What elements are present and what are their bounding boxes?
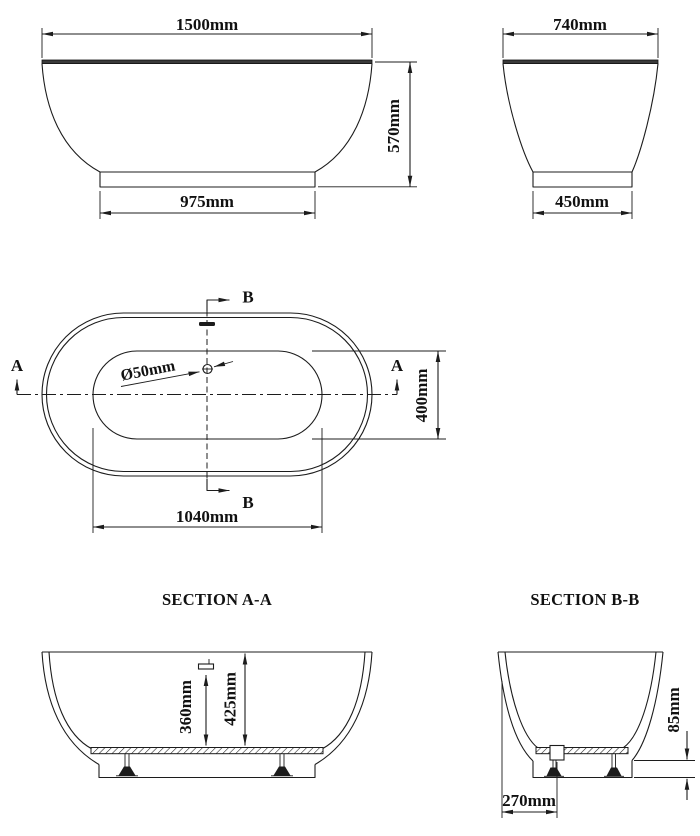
dim-label-basin-width: 400mm [412, 369, 431, 423]
side-view: 740mm 450mm [503, 15, 658, 219]
front-view: 1500mm 975mm 570mm [42, 15, 417, 219]
foot-pad [607, 768, 622, 777]
dim-label-side-base: 450mm [555, 192, 609, 211]
bathtub-technical-drawing: 1500mm 975mm 570mm 740mm 450mm [0, 0, 700, 836]
section-label-b-bottom: B [242, 493, 253, 512]
section-arrow-b-top [207, 300, 230, 311]
dim-label-side-width: 740mm [553, 15, 607, 34]
tub-plinth [533, 172, 632, 187]
tub-wall-right [632, 64, 658, 172]
drain-fitting [550, 746, 564, 761]
section-aa-view: SECTION A-A 360mm 425mm [42, 590, 372, 778]
section-label-a-left: A [11, 356, 24, 375]
wall-inner-right [623, 652, 656, 748]
overflow-fitting [199, 664, 214, 669]
foot-pad [119, 767, 136, 776]
section-arrow-b-bottom [207, 479, 230, 491]
dim-label-drain: Ø50mm [119, 357, 177, 384]
drawing-sheet: 1500mm 975mm 570mm 740mm 450mm [0, 0, 700, 836]
foot-pad [547, 768, 562, 777]
tub-wall-right [315, 64, 372, 172]
section-label-b-top: B [242, 288, 253, 307]
section-aa-title: SECTION A-A [162, 590, 272, 609]
dim-label-basin-length: 1040mm [176, 507, 238, 526]
floor-board-hatched [91, 748, 323, 754]
plan-view: Ø50mm A A B B 400mm 1040mm [11, 288, 446, 534]
dim-label-front-width: 1500mm [176, 15, 238, 34]
drain-leader-line [214, 362, 233, 367]
tub-wall-left [42, 64, 100, 172]
dim-label-front-base: 975mm [180, 192, 234, 211]
tub-plinth [100, 172, 315, 187]
tub-rim [42, 60, 372, 64]
wall-inner-left [505, 652, 538, 748]
wall-inner-left [49, 652, 92, 749]
dim-label-base-height: 85mm [664, 687, 683, 732]
section-label-a-right: A [391, 356, 404, 375]
dim-label-overflow-height: 360mm [176, 680, 195, 734]
wall-inner-right [322, 652, 365, 749]
section-bb-view: SECTION B-B 85mm 270mm [498, 590, 695, 818]
tub-rim [503, 60, 658, 64]
foot-pad [274, 767, 291, 776]
dim-label-front-height: 570mm [384, 99, 403, 153]
dim-label-drain-offset: 270mm [502, 791, 556, 810]
wall-outer-right [632, 652, 663, 761]
dim-label-inner-depth: 425mm [221, 672, 240, 726]
tub-wall-left [503, 64, 533, 172]
section-bb-title: SECTION B-B [530, 590, 639, 609]
